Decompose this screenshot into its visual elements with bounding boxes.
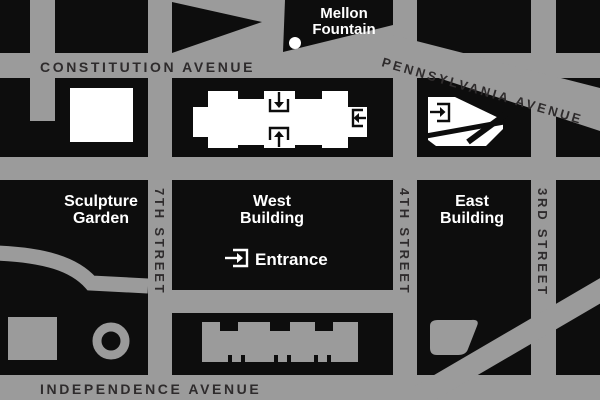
east-building-label-line1: East — [455, 193, 489, 210]
castellated-building-footprint — [202, 322, 358, 362]
mellon-fountain-dot — [289, 37, 301, 49]
castellated-tick — [314, 355, 318, 362]
map-canvas: Entrance Mellon Fountain Sculpture Garde… — [0, 0, 600, 400]
castellated-notch — [270, 322, 290, 331]
entrance-label: Entrance — [255, 250, 328, 269]
castellated-tick — [228, 355, 232, 362]
sculpture-garden-label-line1: Sculpture — [64, 193, 138, 210]
west-building-label-line2: Building — [240, 210, 304, 227]
4th-street-label: 4TH STREET — [397, 188, 412, 295]
independence-avenue-label: INDEPENDENCE AVENUE — [40, 381, 261, 397]
3rd-street-label: 3RD STREET — [535, 188, 550, 297]
castellated-tick — [287, 355, 291, 362]
castellated-tick — [274, 355, 278, 362]
west-building-label-line1: West — [253, 193, 292, 210]
mellon-fountain-label-line2: Fountain — [312, 21, 375, 38]
castellated-notch — [315, 322, 333, 331]
sculpture-garden-label-line2: Garden — [73, 210, 129, 227]
mellon-fountain-label-line1: Mellon — [320, 5, 368, 22]
east-building-label-line2: Building — [440, 210, 504, 227]
sculpture-garden-pool — [70, 88, 133, 142]
square-plaza-footprint — [8, 317, 57, 360]
constitution-avenue-label: CONSTITUTION AVENUE — [40, 59, 255, 75]
gallery-map-svg: Entrance Mellon Fountain Sculpture Garde… — [0, 0, 600, 400]
7th-street-label: 7TH STREET — [152, 188, 167, 295]
castellated-notch — [220, 322, 238, 331]
mall-cross-path — [0, 157, 600, 180]
castellated-tick — [241, 355, 245, 362]
castellated-tick — [327, 355, 331, 362]
street-madison-drive — [148, 290, 417, 313]
